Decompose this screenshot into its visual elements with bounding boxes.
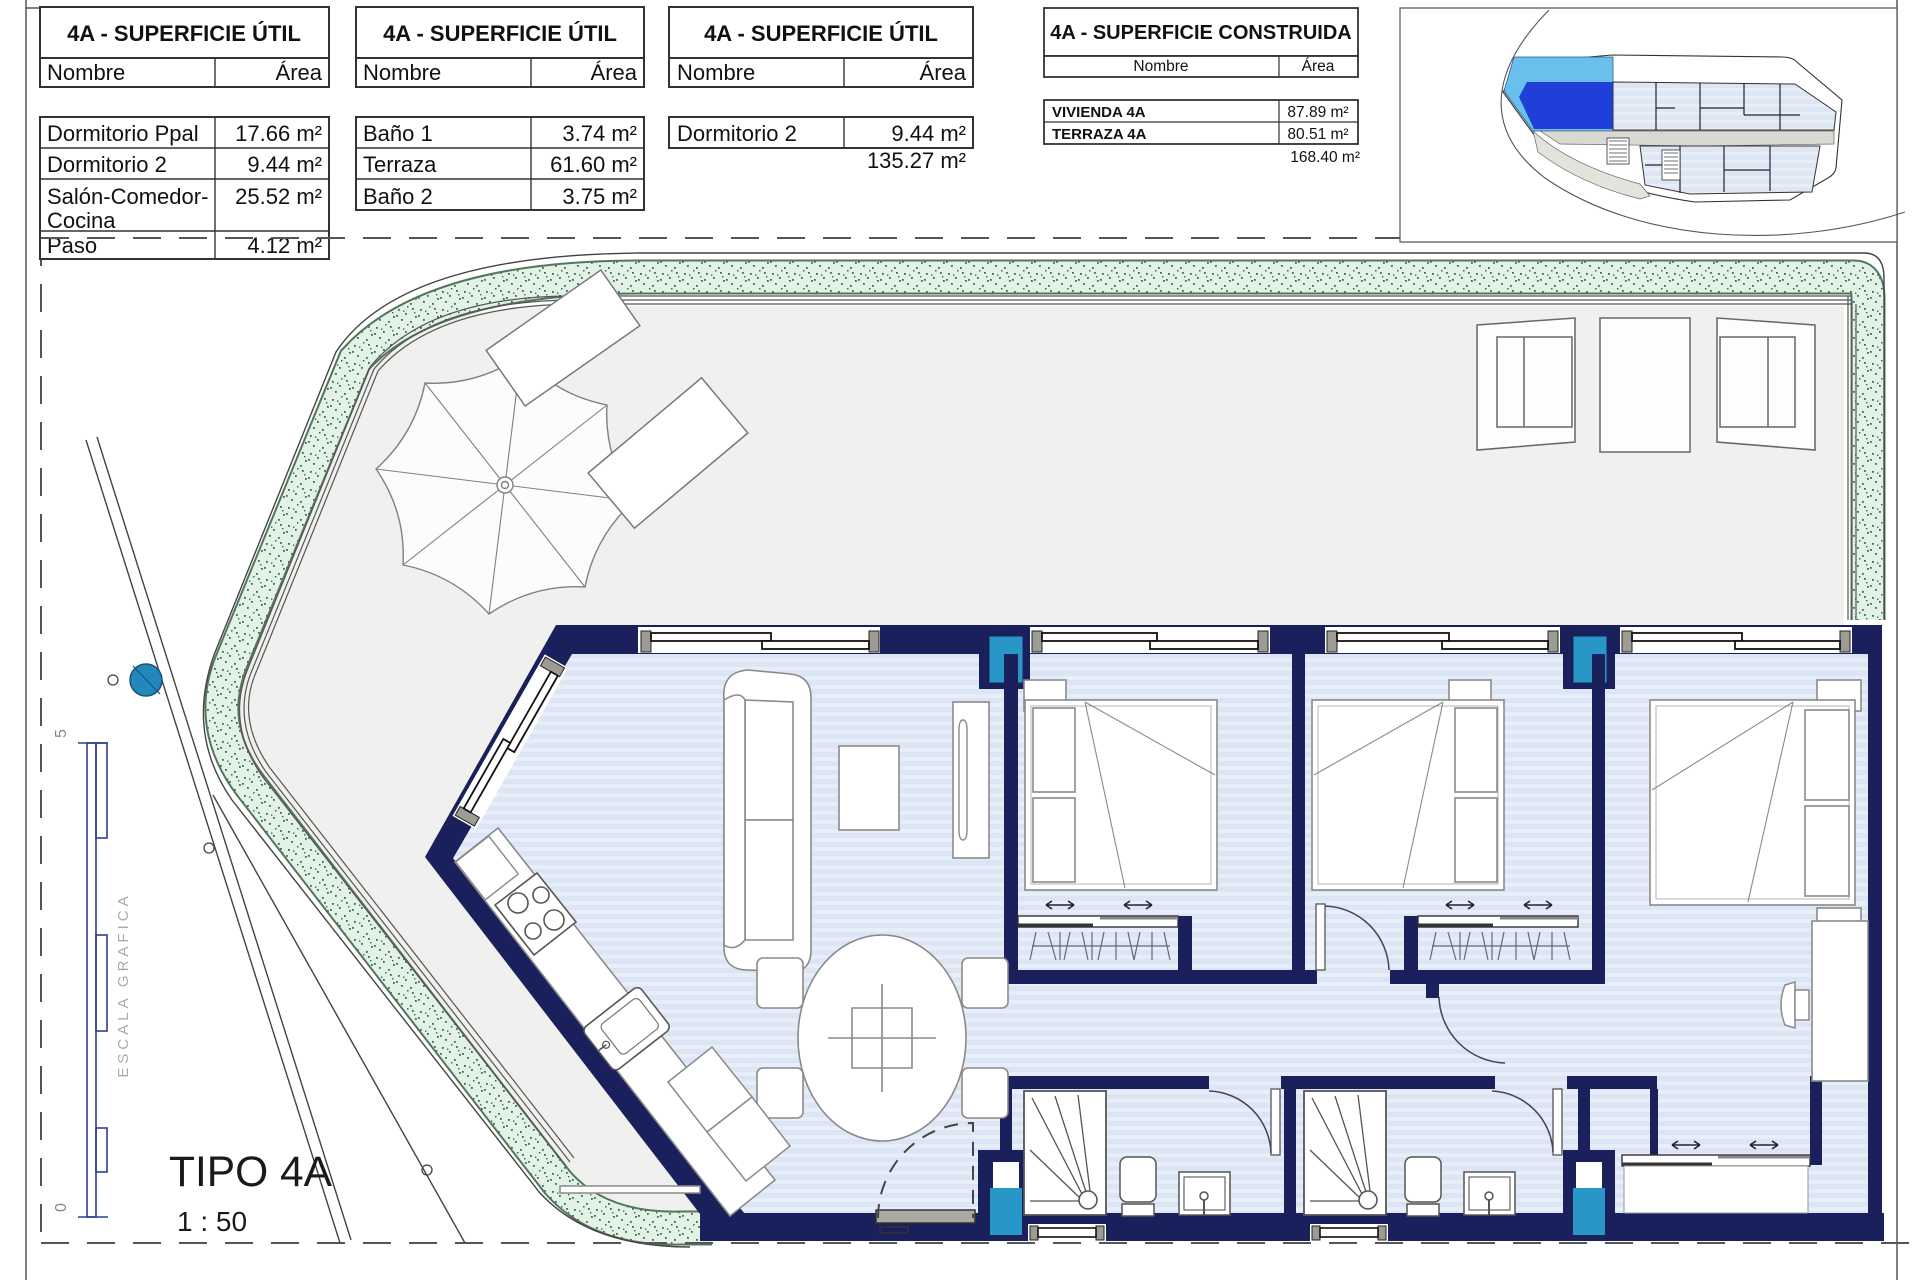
svg-text:Dormitorio 2: Dormitorio 2 [677, 121, 797, 146]
svg-text:Área: Área [591, 60, 638, 85]
svg-text:87.89 m²: 87.89 m² [1287, 104, 1348, 121]
svg-text:5: 5 [53, 729, 70, 738]
svg-text:3.75 m²: 3.75 m² [562, 184, 637, 209]
svg-text:4.12 m²: 4.12 m² [247, 233, 322, 258]
svg-text:25.52 m²: 25.52 m² [235, 184, 322, 209]
svg-text:Área: Área [920, 60, 967, 85]
svg-text:9.44 m²: 9.44 m² [891, 121, 966, 146]
svg-text:135.27 m²: 135.27 m² [867, 148, 966, 173]
svg-text:Paso: Paso [47, 233, 97, 258]
svg-text:TIPO 4A: TIPO 4A [169, 1149, 333, 1196]
svg-text:1 : 50: 1 : 50 [177, 1206, 247, 1237]
svg-text:Baño 2: Baño 2 [363, 184, 433, 209]
svg-text:Área: Área [276, 60, 323, 85]
svg-text:80.51 m²: 80.51 m² [1287, 126, 1348, 143]
svg-text:Dormitorio Ppal: Dormitorio Ppal [47, 121, 199, 146]
svg-text:4A - SUPERFICIE ÚTIL: 4A - SUPERFICIE ÚTIL [383, 21, 617, 46]
svg-text:168.40 m²: 168.40 m² [1290, 149, 1360, 166]
svg-text:Nombre: Nombre [363, 60, 441, 85]
svg-text:Nombre: Nombre [47, 60, 125, 85]
svg-text:Nombre: Nombre [1133, 58, 1188, 75]
svg-text:4A - SUPERFICIE ÚTIL: 4A - SUPERFICIE ÚTIL [704, 21, 938, 46]
svg-text:ESCALA GRAFICA: ESCALA GRAFICA [115, 892, 132, 1077]
svg-text:4A - SUPERFICIE CONSTRUIDA: 4A - SUPERFICIE CONSTRUIDA [1050, 22, 1352, 44]
svg-text:Baño 1: Baño 1 [363, 121, 433, 146]
svg-text:Terraza: Terraza [363, 152, 437, 177]
svg-text:VIVIENDA 4A: VIVIENDA 4A [1052, 104, 1146, 121]
svg-text:Dormitorio 2: Dormitorio 2 [47, 152, 167, 177]
svg-text:Cocina: Cocina [47, 208, 116, 233]
svg-text:17.66 m²: 17.66 m² [235, 121, 322, 146]
svg-text:3.74 m²: 3.74 m² [562, 121, 637, 146]
svg-text:Salón-Comedor-: Salón-Comedor- [47, 184, 208, 209]
svg-text:Nombre: Nombre [677, 60, 755, 85]
svg-text:4A - SUPERFICIE ÚTIL: 4A - SUPERFICIE ÚTIL [67, 21, 301, 46]
svg-text:9.44 m²: 9.44 m² [247, 152, 322, 177]
svg-text:61.60 m²: 61.60 m² [550, 152, 637, 177]
svg-text:0: 0 [53, 1203, 70, 1212]
svg-text:Área: Área [1302, 58, 1335, 75]
svg-text:TERRAZA 4A: TERRAZA 4A [1052, 126, 1147, 143]
